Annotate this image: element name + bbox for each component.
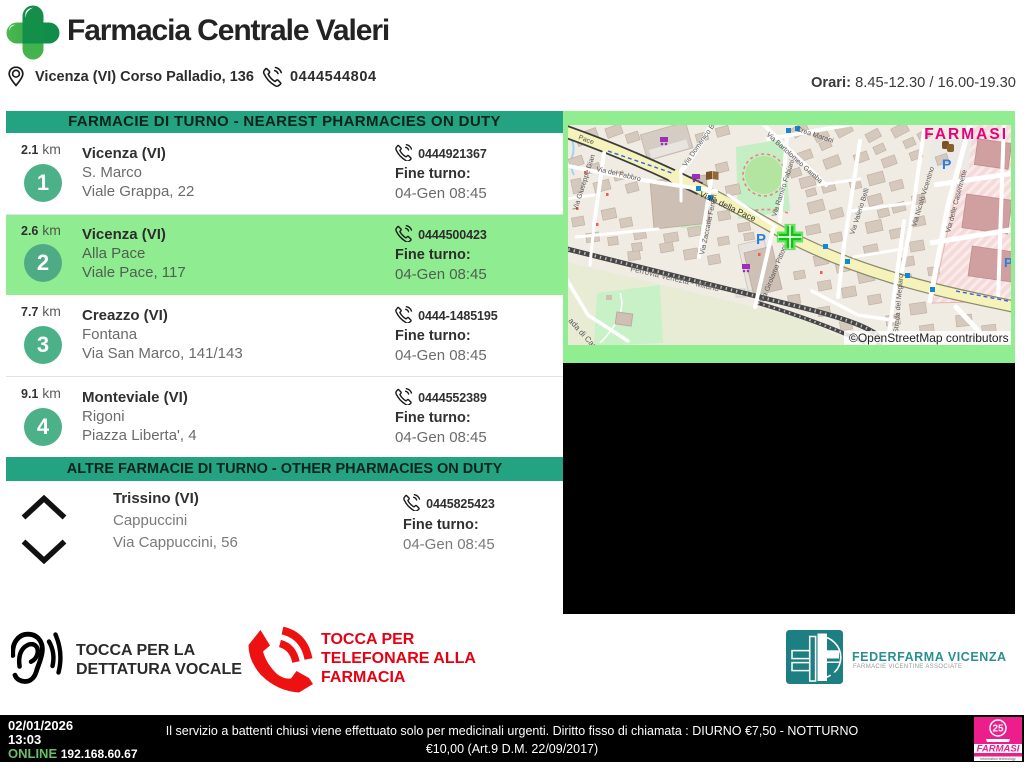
svg-text:©OpenStreetMap contributors: ©OpenStreetMap contributors bbox=[849, 331, 1009, 345]
svg-text:information technology: information technology bbox=[980, 757, 1015, 761]
svg-text:25: 25 bbox=[992, 724, 1004, 735]
svg-text:FARMASI: FARMASI bbox=[924, 126, 1008, 143]
svg-text:P: P bbox=[756, 231, 766, 248]
svg-text:P: P bbox=[1004, 255, 1011, 270]
svg-text:P: P bbox=[942, 156, 951, 172]
svg-text:FARMASI: FARMASI bbox=[977, 744, 1020, 755]
